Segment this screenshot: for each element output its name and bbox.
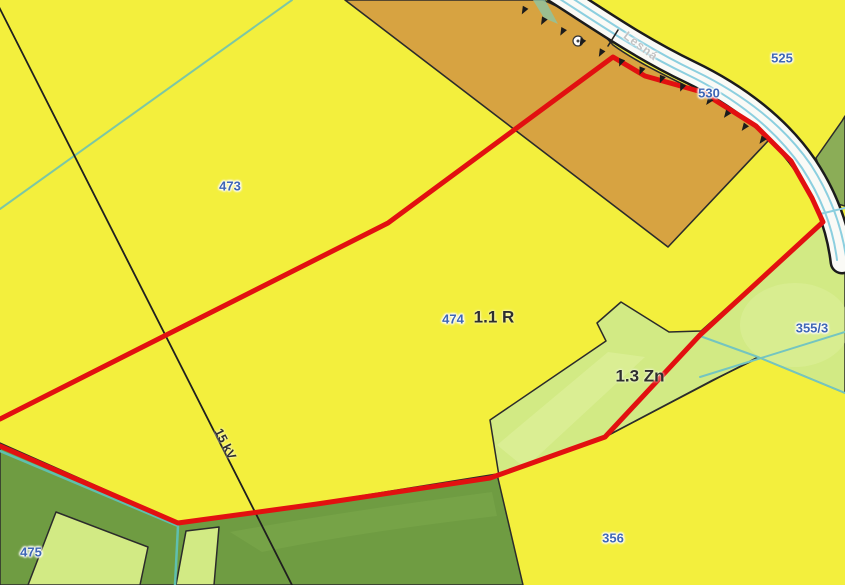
culvert-symbol-dot — [577, 40, 580, 43]
parcel-355-3-highlight — [740, 283, 845, 367]
map-viewport[interactable]: 473474525530355/33564751.1 R1.3 Zn15 kVL… — [0, 0, 845, 585]
map-canvas[interactable] — [0, 0, 845, 585]
